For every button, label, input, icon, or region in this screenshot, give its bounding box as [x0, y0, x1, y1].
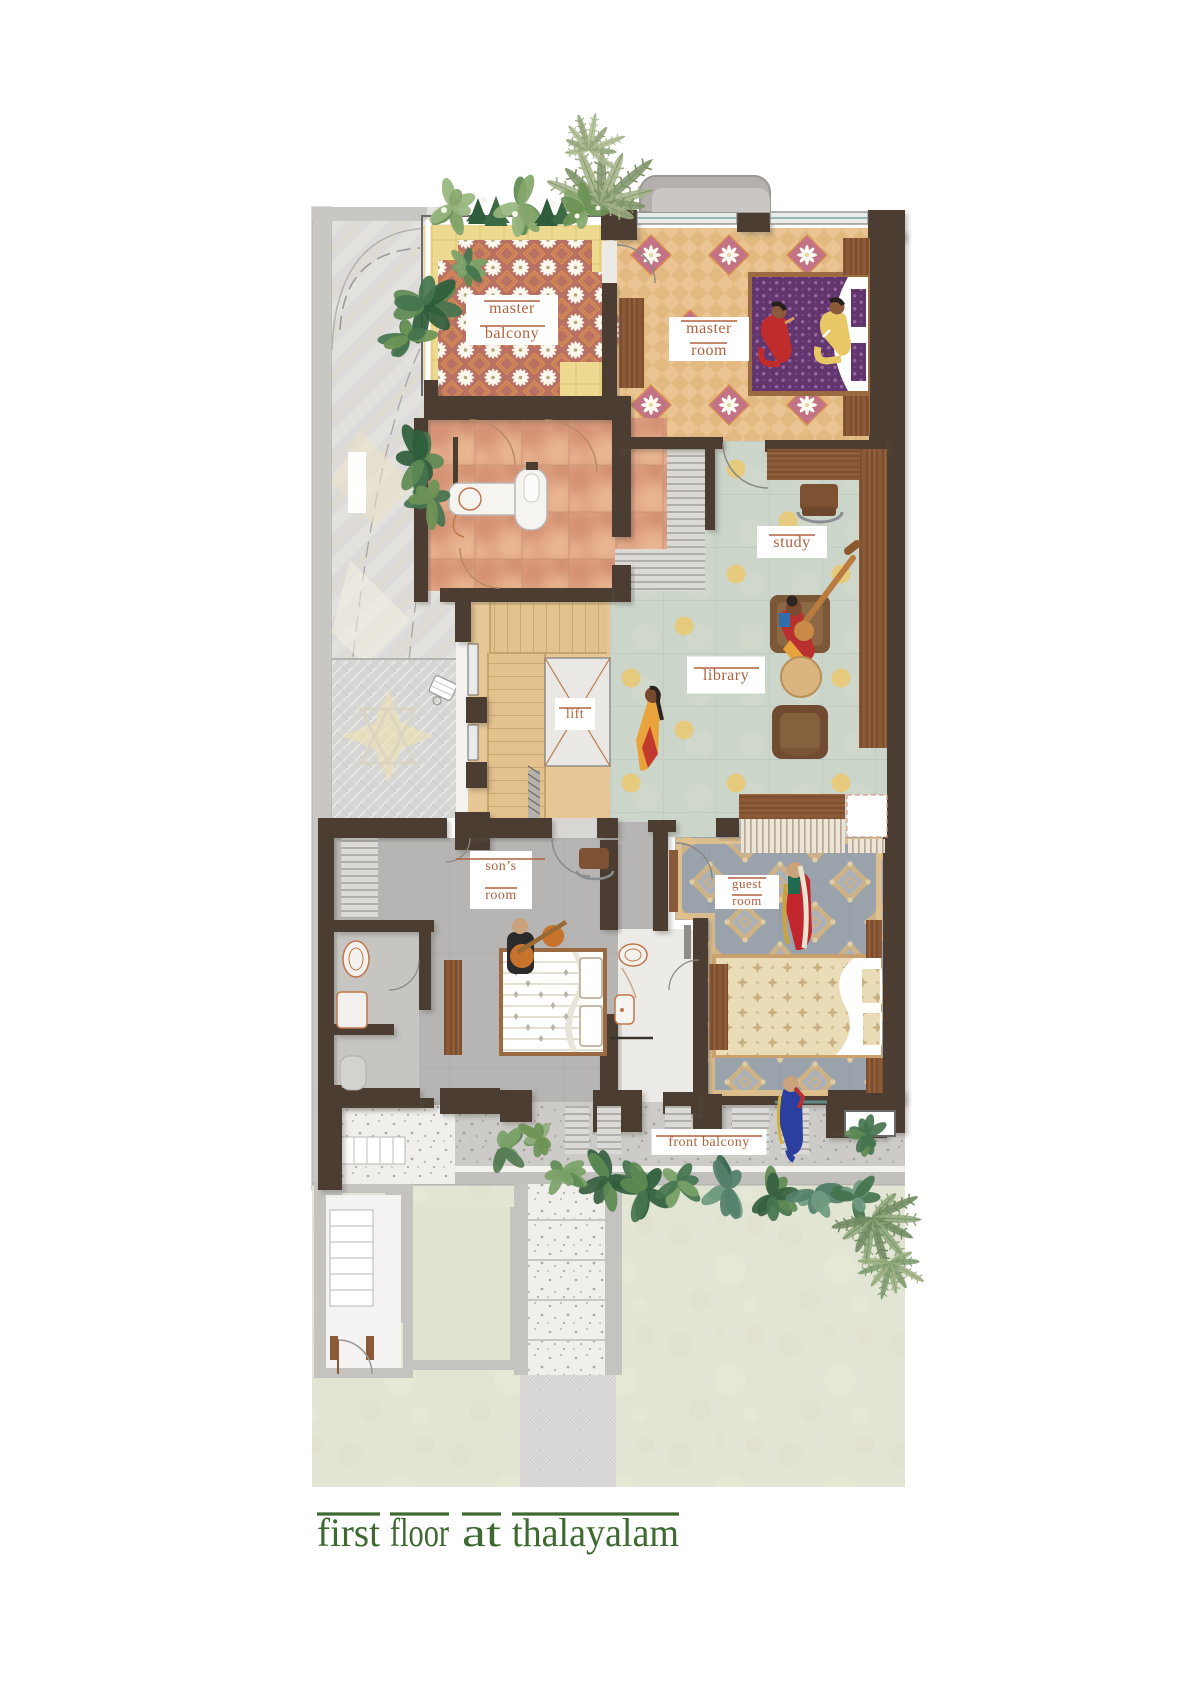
svg-text:son’s: son’s [485, 859, 516, 874]
svg-text:balcony: balcony [485, 325, 539, 342]
svg-text:master: master [489, 300, 535, 317]
svg-text:study: study [773, 534, 810, 551]
svg-text:first: first [317, 1510, 380, 1555]
svg-text:at: at [462, 1510, 501, 1555]
svg-text:library: library [703, 667, 749, 684]
svg-text:front balcony: front balcony [668, 1135, 750, 1150]
svg-text:lift: lift [566, 707, 584, 722]
svg-text:master: master [686, 320, 732, 337]
svg-text:room: room [485, 888, 517, 903]
svg-text:room: room [691, 342, 727, 359]
svg-text:thalayalam: thalayalam [512, 1510, 679, 1555]
svg-text:floor: floor [390, 1510, 449, 1555]
